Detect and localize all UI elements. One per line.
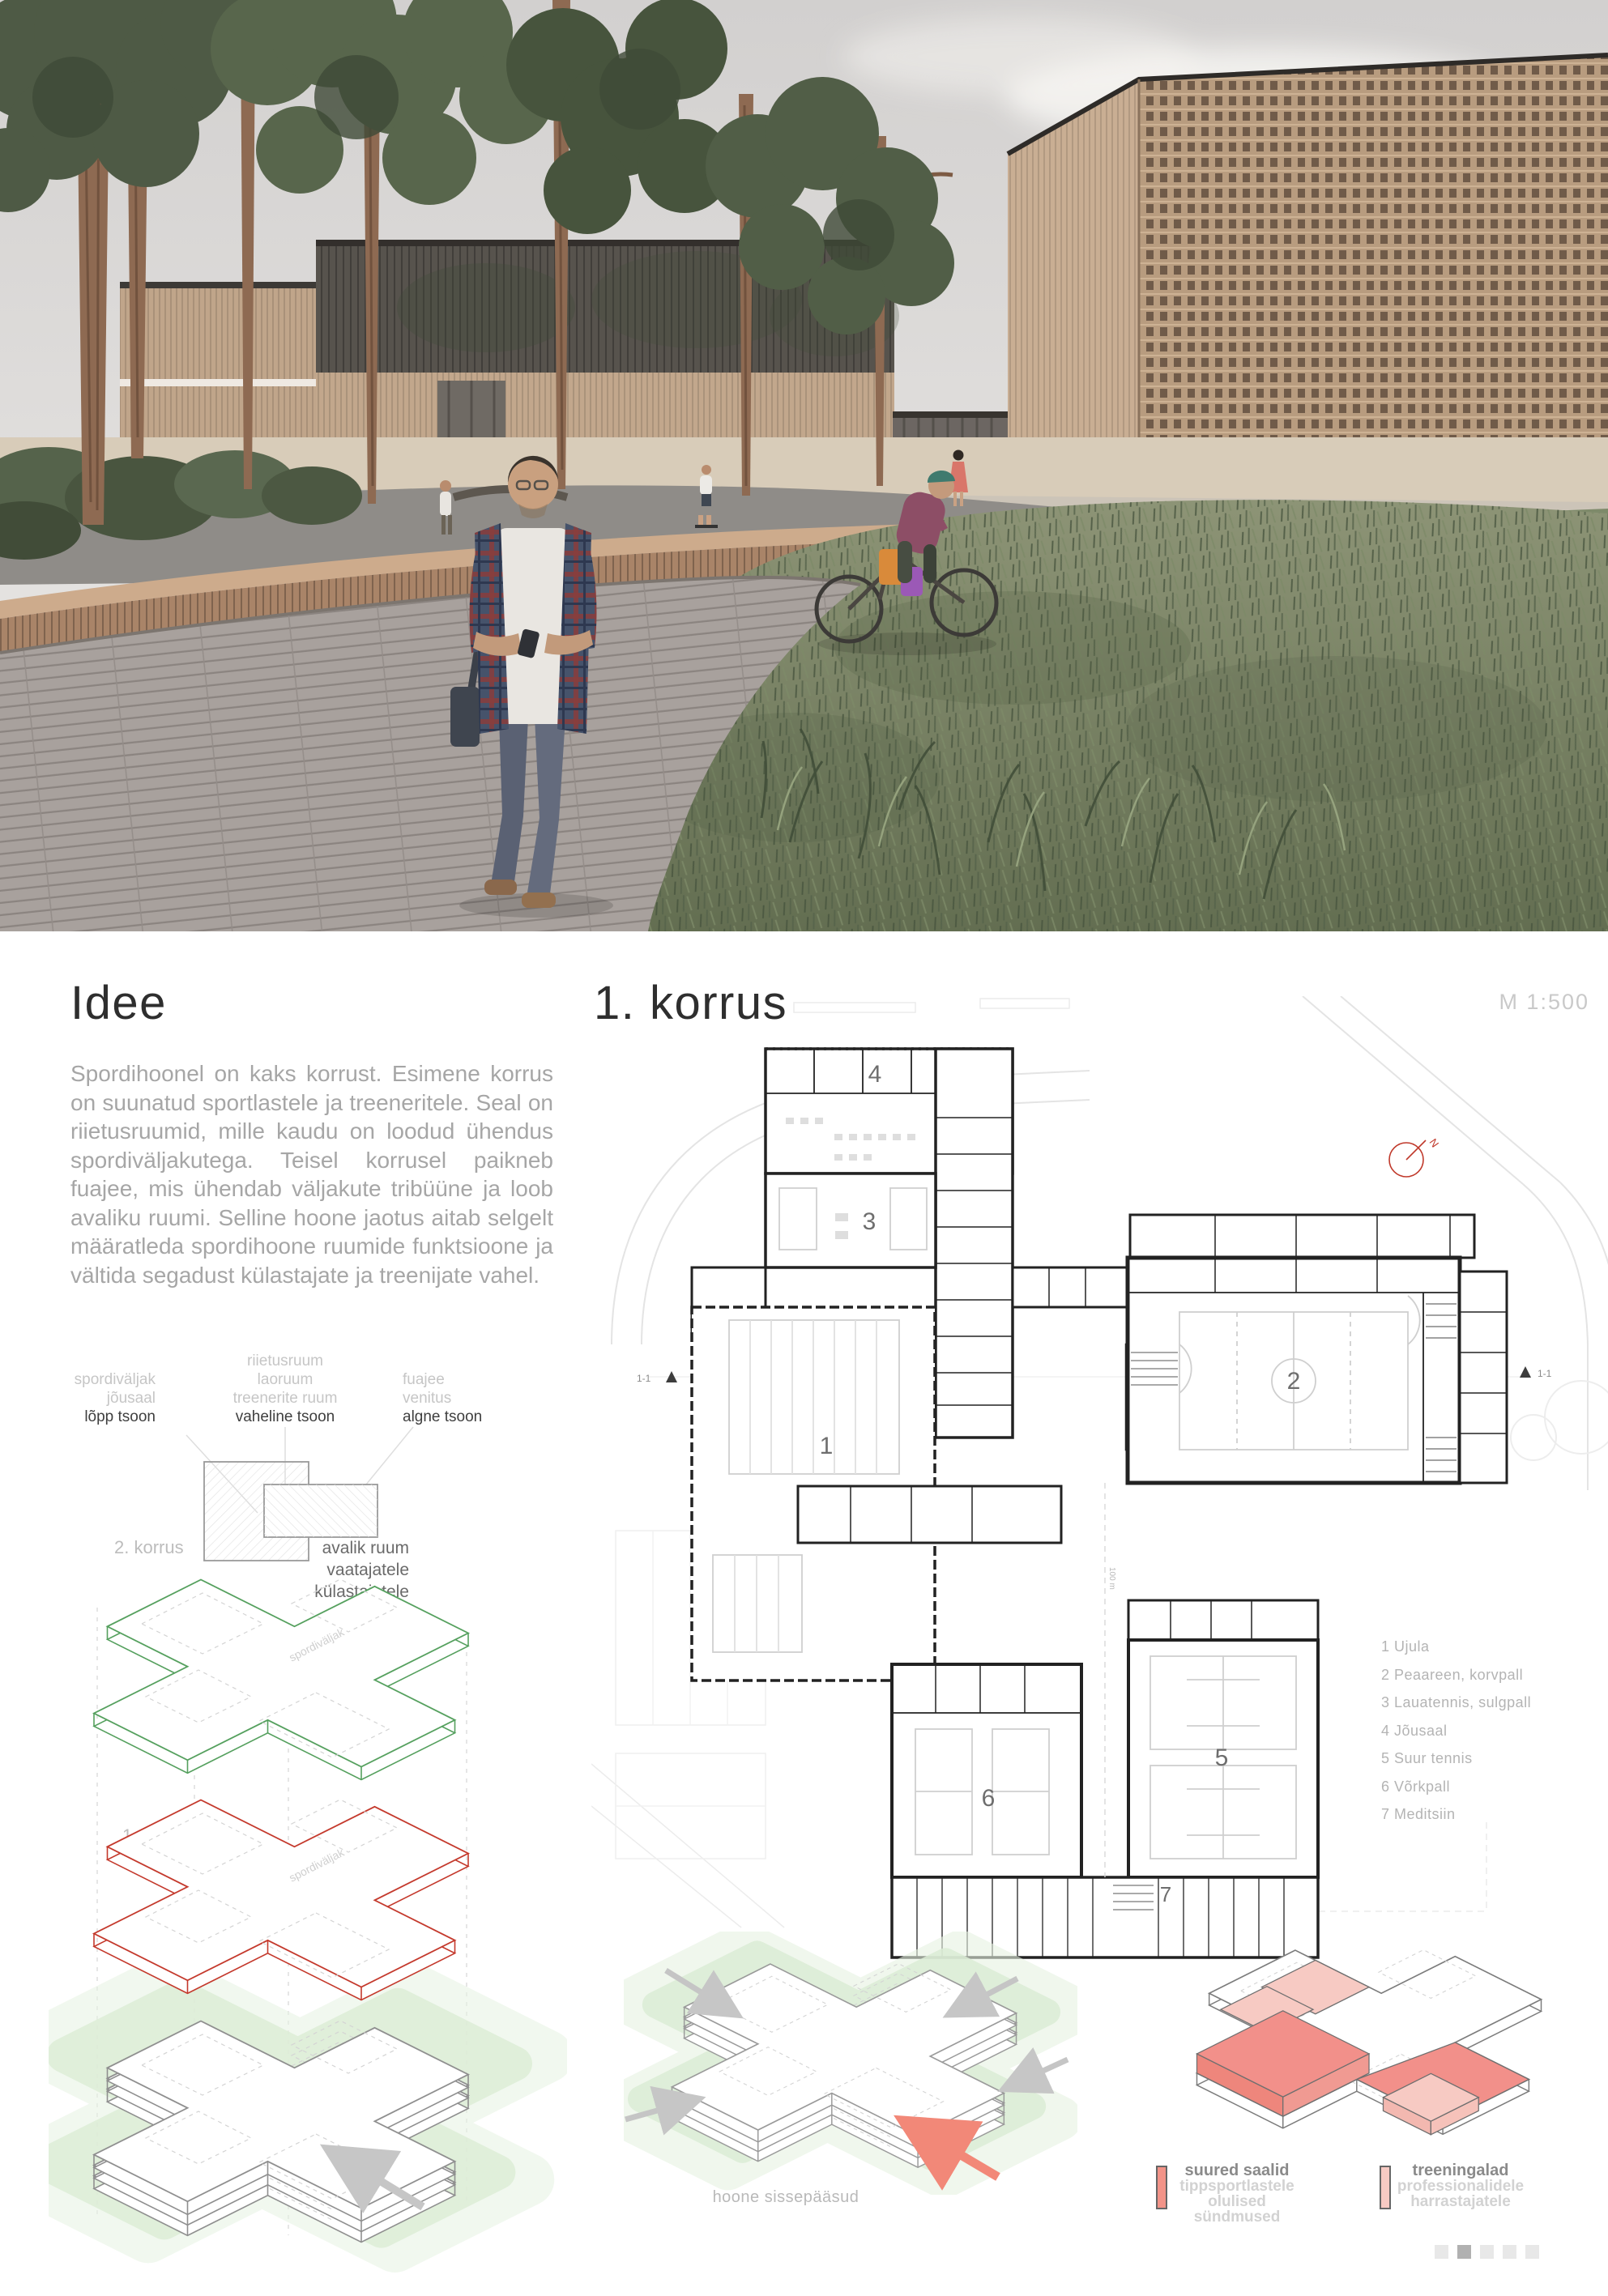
hero-render <box>0 0 1608 931</box>
north-label: N <box>1427 1136 1442 1149</box>
zone-col-2: riietusruum laoruum treenerite ruum vahe… <box>204 1352 366 1426</box>
idee-title: Idee <box>70 976 167 1030</box>
legend-item: 6 Võrkpall <box>1381 1773 1531 1801</box>
idee-paragraph: Spordihoonel on kaks korrust. Esimene ko… <box>70 1059 553 1289</box>
zone-col-1: spordiväljak jõusaal lõpp tsoon <box>32 1370 156 1426</box>
legend-item: 7 Meditsiin <box>1381 1800 1531 1829</box>
axon-stack: spordiväljak spordiväljak <box>49 1523 567 2292</box>
pagination-dot[interactable] <box>1480 2245 1494 2259</box>
room-number-7: 7 <box>1160 1882 1171 1906</box>
entrances-diagram <box>624 1932 1077 2195</box>
axon-floor1-red <box>94 1800 468 2000</box>
plan-legend: 1 Ujula 2 Peaareen, korvpall 3 Lauatenni… <box>1381 1633 1531 1829</box>
entrances-label: hoone sissepääsud <box>664 2188 907 2207</box>
legend-bighalls: suured saalid tippsportlastele olulised … <box>1172 2163 1302 2225</box>
room-number-2: 2 <box>1287 1368 1301 1395</box>
room-number-5: 5 <box>1215 1744 1229 1771</box>
legend-item: 3 Lauatennis, sulgpall <box>1381 1689 1531 1717</box>
room-number-3: 3 <box>863 1208 877 1235</box>
svg-text:1-1: 1-1 <box>637 1373 651 1384</box>
pagination <box>1435 2245 1548 2263</box>
svg-text:1-1: 1-1 <box>1538 1368 1552 1379</box>
room-number-6: 6 <box>982 1785 996 1812</box>
room-number-1: 1 <box>820 1433 834 1459</box>
section-marker-left: 1-1 <box>637 1371 677 1384</box>
program-diagram <box>1134 1936 1608 2170</box>
legend-item: 4 Jõusaal <box>1381 1717 1531 1745</box>
legend-item: 1 Ujula <box>1381 1633 1531 1661</box>
pagination-dot[interactable] <box>1525 2245 1539 2259</box>
north-compass: N <box>1389 1136 1441 1177</box>
room-number-4: 4 <box>868 1061 882 1088</box>
dim-label: 100 m <box>1107 1567 1116 1590</box>
legend-item: 2 Peaareen, korvpall <box>1381 1661 1531 1689</box>
legend-bar-bighalls <box>1156 2166 1167 2209</box>
legend-item: 5 Suur tennis <box>1381 1744 1531 1773</box>
pagination-dot[interactable] <box>1435 2245 1448 2259</box>
shoulder-bag <box>450 687 480 747</box>
zone-col-3: fuajee venitus algne tsoon <box>403 1370 548 1426</box>
pagination-dot[interactable] <box>1457 2245 1471 2259</box>
pagination-dot[interactable] <box>1503 2245 1516 2259</box>
axon-floor2-green <box>94 1579 468 1780</box>
legend-bar-training <box>1380 2166 1391 2209</box>
section-marker-right: 1-1 <box>1520 1366 1552 1379</box>
legend-training: treeningalad professionalidele harrastaj… <box>1396 2163 1525 2209</box>
